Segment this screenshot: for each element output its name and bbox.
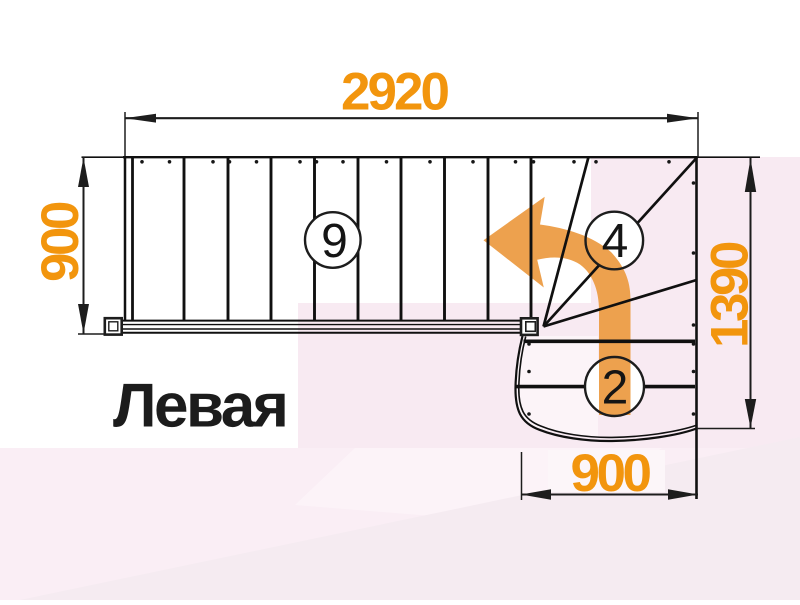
svg-text:900: 900: [571, 444, 651, 503]
svg-text:2920: 2920: [341, 63, 448, 122]
svg-text:Левая: Левая: [113, 372, 286, 441]
svg-text:1390: 1390: [701, 242, 760, 348]
svg-text:9: 9: [321, 215, 348, 268]
svg-text:900: 900: [31, 202, 90, 282]
svg-text:2: 2: [602, 361, 629, 414]
svg-text:4: 4: [602, 215, 629, 268]
